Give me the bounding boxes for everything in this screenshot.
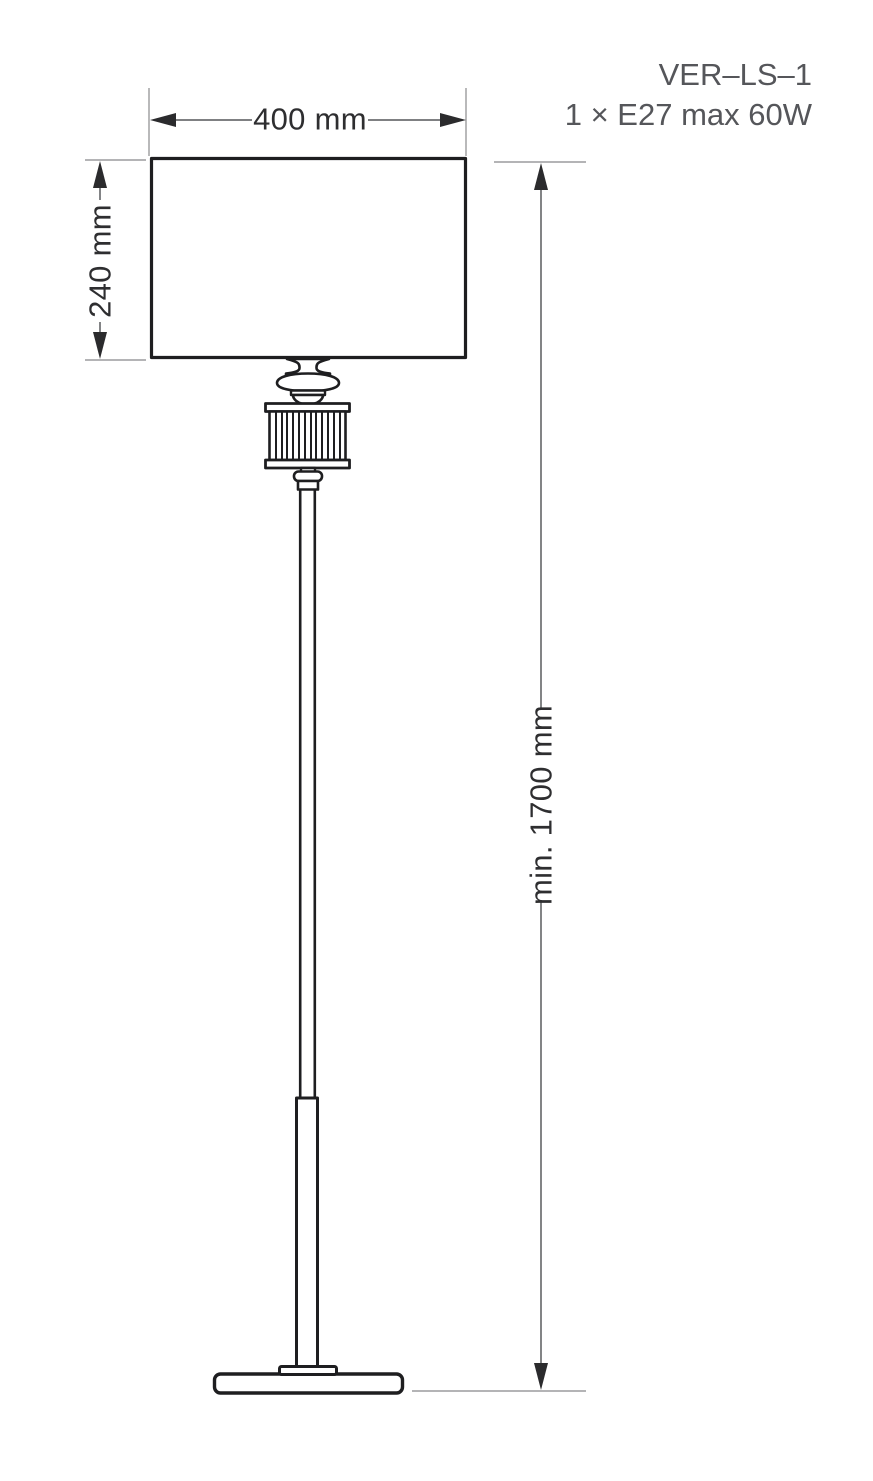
product-spec: 1 × E27 max 60W [565,99,812,130]
arrow-height-up [93,161,107,188]
technical-drawing-page: VER–LS–1 1 × E27 max 60W 400 mm 240 mm m… [0,0,873,1481]
lamp [152,159,466,1394]
arrow-height-down [93,332,107,359]
arrow-width-left [150,113,176,127]
dimension-label-shade-height: 240 mm [85,204,116,318]
lamp-base-flange [280,1367,337,1375]
arrow-total-down [534,1363,548,1390]
lamp-saucer [277,374,339,391]
lamp-pole [300,489,315,1100]
dimension-label-shade-width: 400 mm [253,104,367,135]
lamp-knob [294,472,322,482]
arrow-width-right [440,113,466,127]
lamp-shade [152,159,466,358]
lamp-pole-sleeve [297,1098,318,1369]
product-code: VER–LS–1 [659,59,812,90]
lamp-technical-drawing [0,0,873,1481]
arrow-total-up [534,163,548,190]
lamp-collar [298,481,318,490]
lamp-base [215,1374,403,1393]
dimension-label-total-height: min. 1700 mm [526,705,557,905]
